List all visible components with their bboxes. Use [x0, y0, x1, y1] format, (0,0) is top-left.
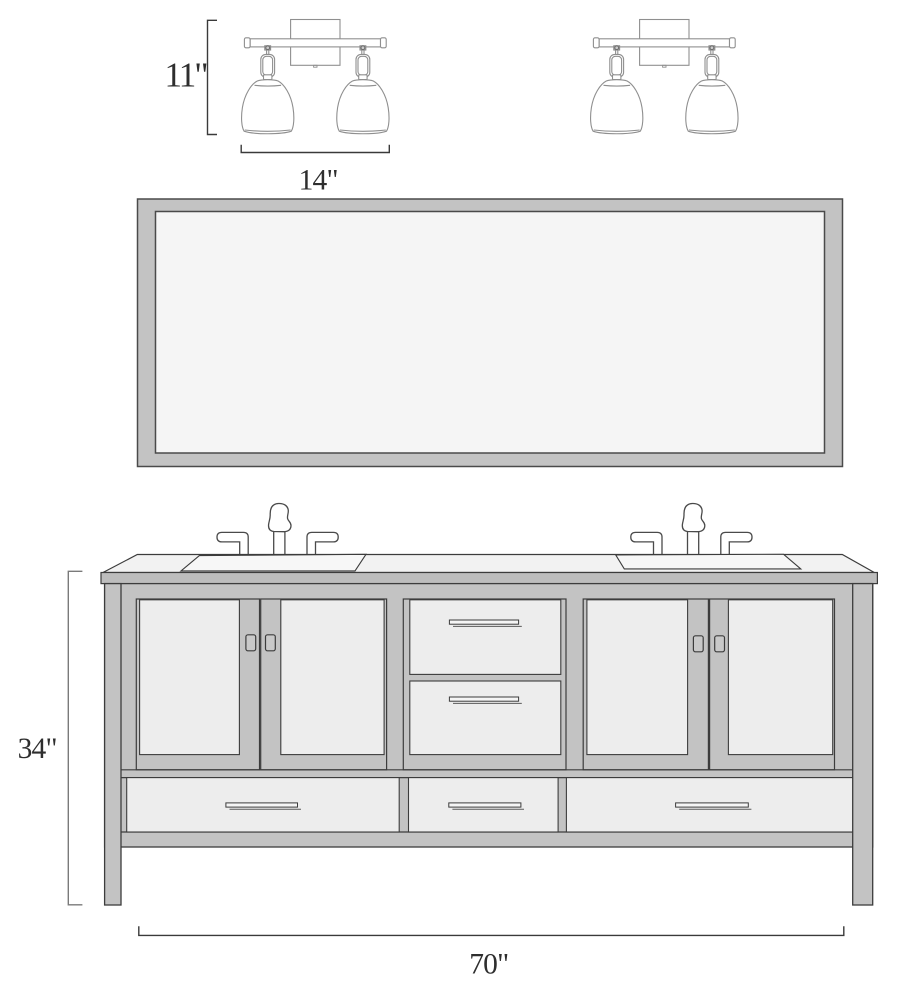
svg-text:11": 11" — [165, 56, 208, 95]
svg-text:70": 70" — [469, 948, 508, 980]
svg-text:34": 34" — [18, 733, 57, 765]
svg-text:14": 14" — [299, 165, 338, 197]
